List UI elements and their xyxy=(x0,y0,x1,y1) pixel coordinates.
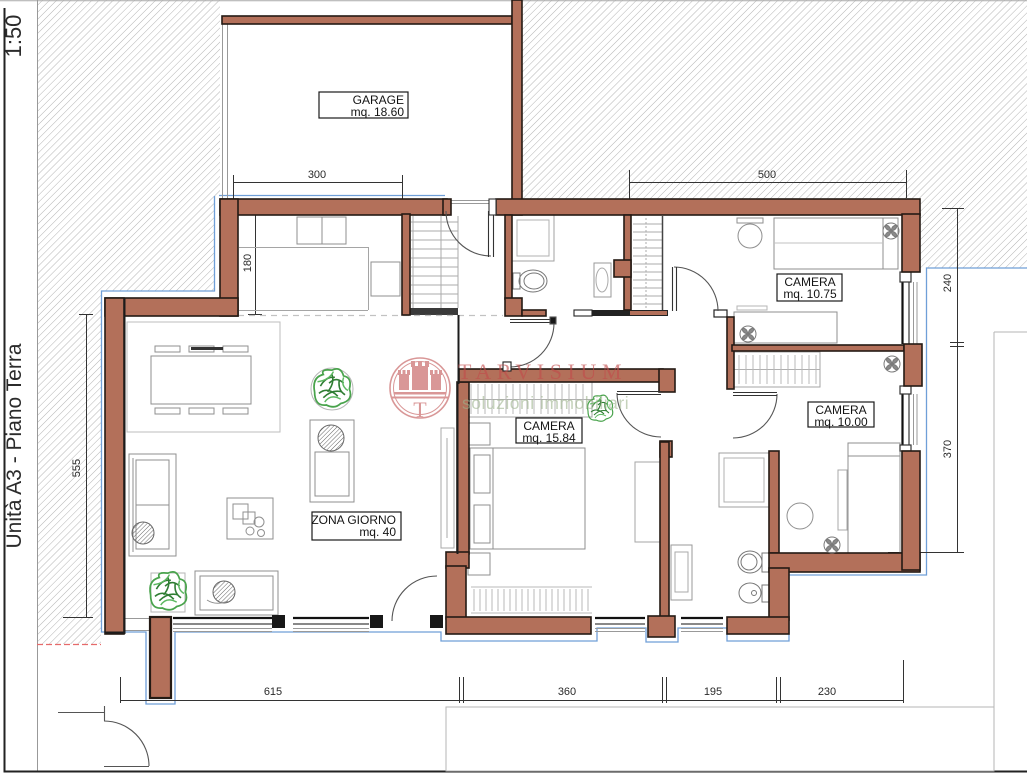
svg-text:615: 615 xyxy=(264,686,282,698)
svg-text:mq. 10.75: mq. 10.75 xyxy=(783,287,837,301)
svg-text:Unità A3 - Piano Terra: Unità A3 - Piano Terra xyxy=(3,343,26,548)
svg-text:240: 240 xyxy=(942,274,954,292)
svg-text:1:50: 1:50 xyxy=(1,15,26,58)
svg-text:230: 230 xyxy=(818,686,836,698)
svg-text:mq. 18.60: mq. 18.60 xyxy=(351,105,405,119)
svg-text:mq. 40: mq. 40 xyxy=(359,525,396,539)
svg-text:195: 195 xyxy=(704,686,722,698)
svg-text:300: 300 xyxy=(308,169,326,181)
svg-text:soluzioni immobiliari: soluzioni immobiliari xyxy=(462,393,629,413)
svg-text:TARVISIUM: TARVISIUM xyxy=(458,359,627,384)
svg-text:mq. 15.84: mq. 15.84 xyxy=(522,431,576,445)
svg-text:555: 555 xyxy=(71,459,83,477)
svg-text:T: T xyxy=(413,397,427,422)
svg-text:180: 180 xyxy=(242,254,254,272)
svg-text:360: 360 xyxy=(558,686,576,698)
svg-text:mq. 10.00: mq. 10.00 xyxy=(814,415,868,429)
svg-text:370: 370 xyxy=(942,440,954,458)
svg-text:500: 500 xyxy=(758,169,776,181)
